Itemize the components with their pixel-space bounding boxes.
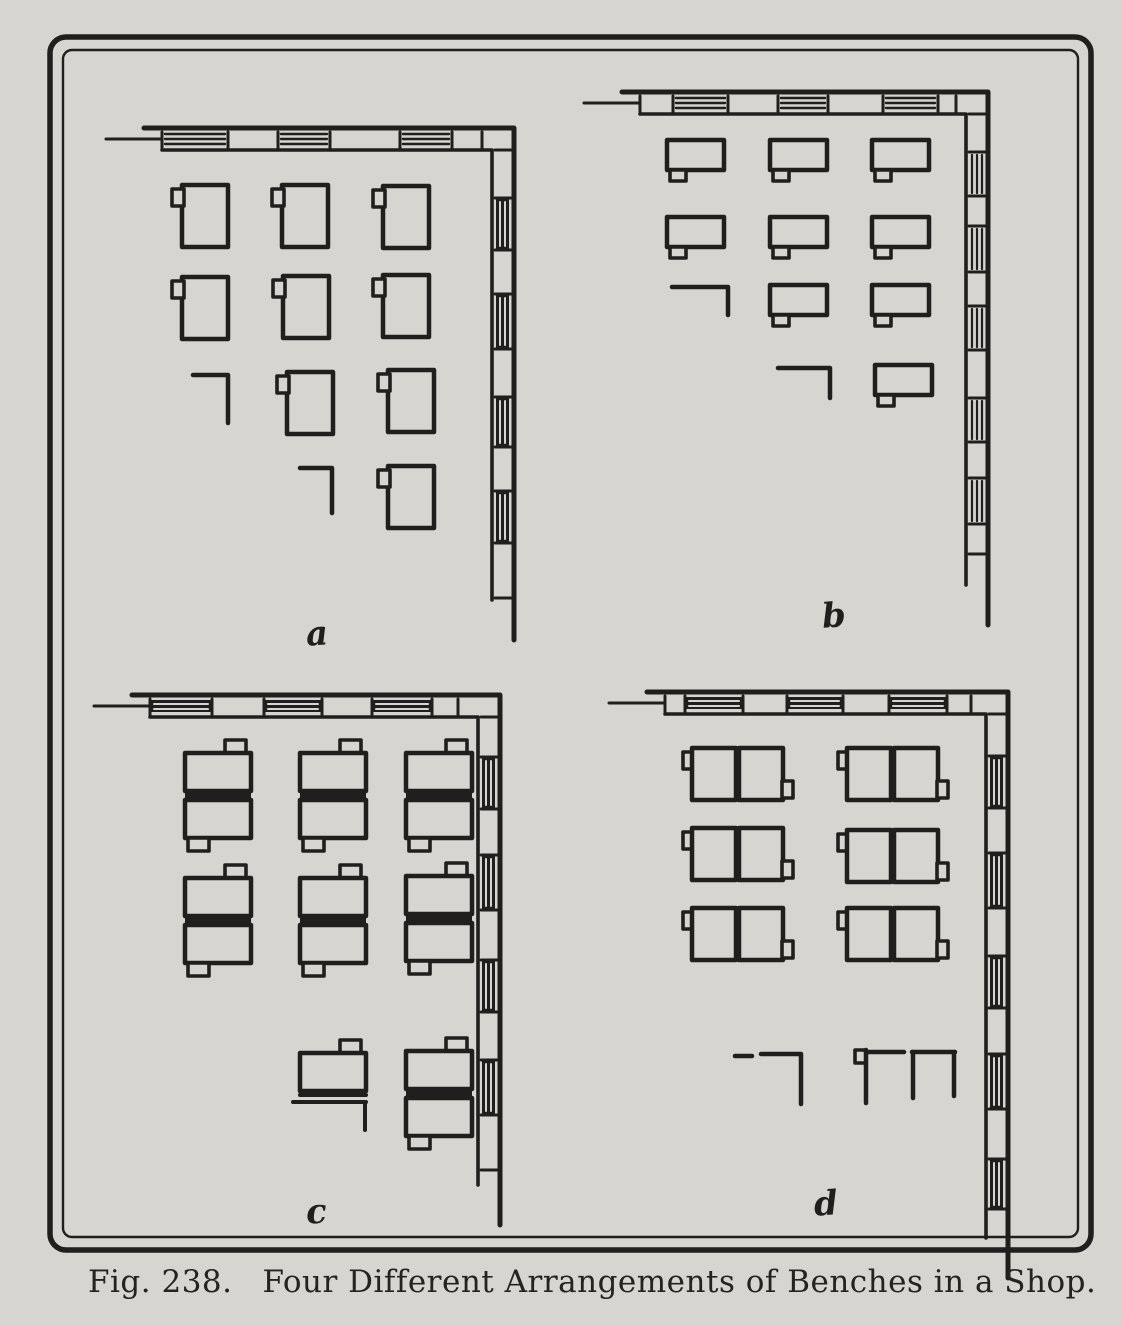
benches-figure-drawing [0, 0, 1121, 1325]
panel-c [94, 695, 500, 1225]
panel-d-label: d [813, 1183, 840, 1225]
panel-d [609, 692, 1008, 1278]
figure-number: Fig. 238. [88, 1264, 233, 1300]
figure-title: Four Different Arrangements of Benches i… [263, 1264, 1097, 1300]
panel-c-label: c [305, 1191, 328, 1232]
panel-a-label: a [305, 613, 330, 654]
panel-b [584, 92, 988, 625]
panel-a [106, 128, 514, 640]
panel-b-label: b [821, 595, 848, 637]
book-page-scan: a b c d Fig. 238.Four Different Arrangem… [0, 0, 1121, 1325]
figure-caption: Fig. 238.Four Different Arrangements of … [88, 1264, 1088, 1300]
